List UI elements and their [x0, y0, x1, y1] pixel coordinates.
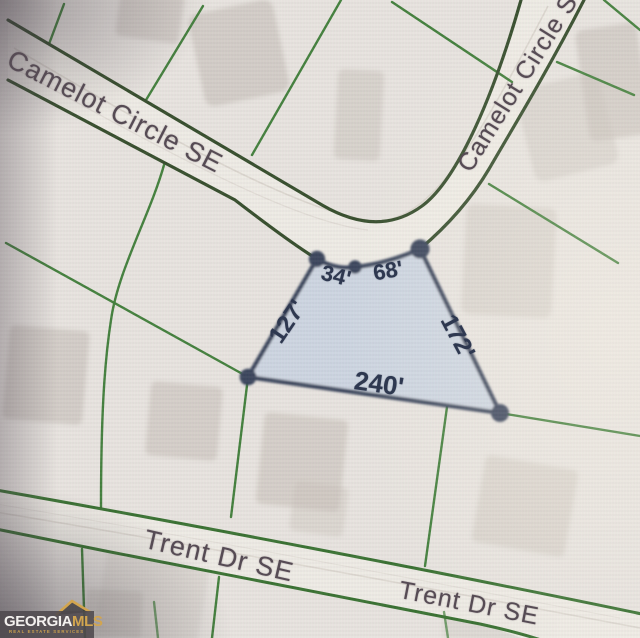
logo-text-georgia: GEORGIA: [4, 613, 72, 630]
lot-line: [500, 413, 640, 436]
building-footprint: [289, 480, 349, 537]
logo-text-mls: MLS: [72, 613, 102, 630]
building-footprint: [471, 455, 579, 558]
logo-tagline: REAL ESTATE SERVICES: [9, 630, 84, 634]
building-footprint: [334, 69, 385, 161]
building-footprint: [115, 0, 185, 44]
lot-line: [101, 165, 164, 508]
lot-line: [212, 577, 219, 638]
building-footprint: [145, 381, 223, 461]
parcel-dimension-bottom: 240': [352, 365, 405, 403]
parcel-corner-dot: [240, 369, 257, 386]
lot-line: [231, 377, 248, 517]
building-footprint: [187, 0, 291, 108]
building-footprint: [2, 325, 90, 426]
building-footprint: [461, 204, 557, 319]
plat-map-canvas: Camelot Circle SE Camelot Circle SE Tren…: [0, 0, 640, 638]
parcel-corner-dot: [410, 239, 429, 258]
lot-line: [49, 4, 64, 44]
georgia-mls-watermark: GEORGIAMLS REAL ESTATE SERVICES: [0, 611, 94, 638]
lot-line: [392, 2, 512, 82]
parcel-dimension-top-right: 68': [371, 256, 405, 287]
lot-line: [425, 407, 447, 566]
georgia-mls-logo-text: GEORGIAMLS: [4, 613, 103, 630]
parcel-corner-dot: [491, 404, 509, 422]
